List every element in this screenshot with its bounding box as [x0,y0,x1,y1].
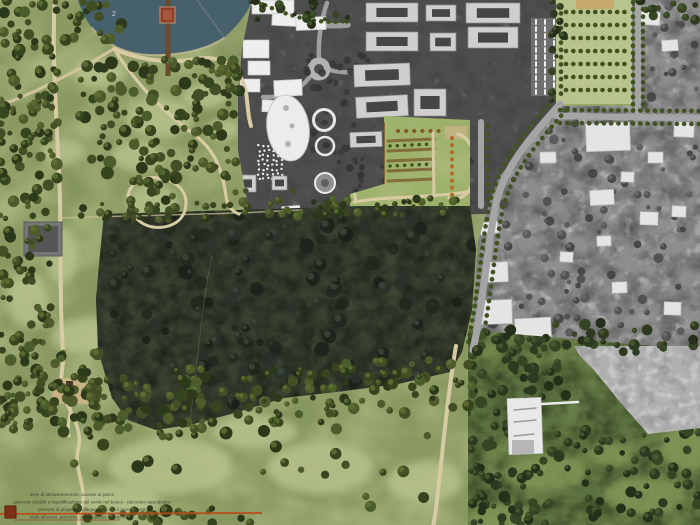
town-buildings [560,252,574,263]
route-line-orange [0,513,262,514]
town-buildings [540,152,556,163]
pier-hut-roof [163,10,172,20]
town-buildings [640,212,658,226]
town-buildings [621,172,634,182]
town-buildings [648,152,663,163]
legend-line-3: percorsi di progetto, collegamento con i… [38,507,152,512]
masterplan-map: aree di attraversamento, accessi al parc… [0,0,700,525]
palace-shapes [243,40,269,58]
town-buildings [586,122,631,152]
town-buildings [597,236,611,246]
avenue-east [556,116,700,118]
legend-line-2: percorsi ciclabili e riqualificazione de… [14,500,171,505]
orchard-tan-strip [576,0,614,9]
legend-line-1: aree di attraversamento, accessi al parc… [30,492,114,497]
town-buildings [612,282,627,294]
town-buildings [672,206,687,218]
town-buildings [590,189,615,205]
masterplan-screenshot: aree di attraversamento, accessi al parc… [0,0,700,525]
town-buildings [664,302,681,316]
town-buildings [662,39,679,51]
palace-shapes [274,79,303,96]
lake-number-label: 2 [112,11,116,18]
legend-line-4: viale alberato, percorso ciclopedonale e… [30,515,127,520]
palace-shapes [248,61,270,75]
legend-marker [5,506,16,518]
